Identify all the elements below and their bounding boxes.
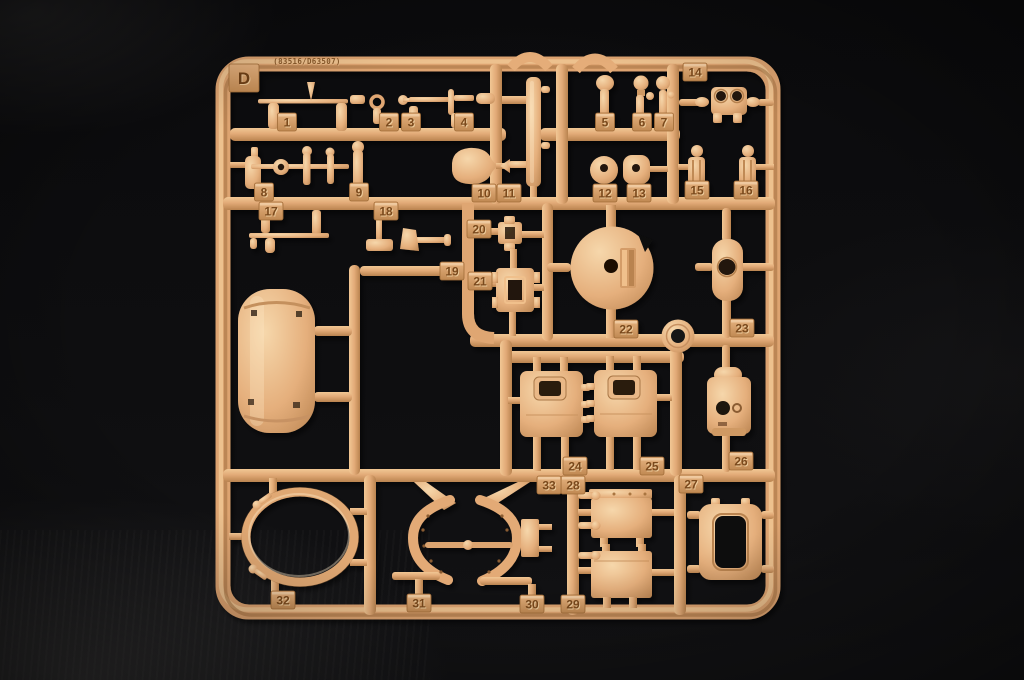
mold-code: (83516/D63507) (83516/D63507): [273, 57, 341, 67]
part-number-tab: 1414: [683, 63, 707, 81]
part-number: 31: [412, 597, 426, 611]
part-number: 9: [356, 186, 363, 200]
part-number-tab: 2626: [729, 452, 753, 470]
part-number-tab: 3030: [520, 595, 544, 613]
part-number: 24: [568, 460, 582, 474]
part-frame-27: [687, 498, 774, 580]
part-number: 25: [645, 460, 659, 474]
part-number-tab: 1919: [440, 262, 464, 280]
sprue-letter-tab: D D: [229, 64, 259, 92]
part-number-tab: 3333: [537, 476, 561, 494]
part-number: 30: [525, 598, 539, 612]
part-number: 23: [735, 322, 749, 336]
part-number: 15: [690, 184, 704, 198]
part-cylinder-26: [707, 367, 751, 436]
mold-code-text: (83516/D63507): [273, 57, 340, 66]
part-number-tab: 1717: [259, 202, 283, 220]
part-cylinder-shell: [238, 289, 352, 433]
part-number-tab: 2121: [468, 272, 492, 290]
part-number: 32: [276, 594, 290, 608]
part-number-tab: 2727: [679, 475, 703, 493]
part-number: 20: [472, 223, 486, 237]
part-number-tab: 1010: [472, 184, 496, 202]
part-number-tab: 1111: [497, 184, 521, 202]
part-number: 7: [661, 116, 668, 130]
part-number-tab: 55: [596, 113, 615, 131]
part-hatch-plate-25: [586, 356, 672, 470]
part-number-tab: 2828: [561, 476, 585, 494]
part-number: 3: [408, 116, 415, 130]
photo-background: D D (83516/D63507) (83516/D63507) 112233…: [0, 0, 1024, 680]
part-number: 14: [688, 66, 702, 80]
part-number-tab: 44: [455, 113, 474, 131]
part-number-tab: 88: [255, 183, 274, 201]
part-number-tab: 1212: [593, 184, 617, 202]
part-number: 26: [734, 455, 748, 469]
sprue-letter: D: [238, 69, 250, 88]
part-number: 13: [632, 187, 646, 201]
part-number-tab: 1313: [627, 184, 651, 202]
part-number: 8: [261, 186, 268, 200]
part-number-tab: 1515: [685, 181, 709, 199]
part-number: 16: [739, 184, 753, 198]
part-number-tab: 99: [350, 183, 369, 201]
part-number-tab: 1616: [734, 181, 758, 199]
part-number-tab: 33: [402, 113, 421, 131]
part-number-tab: 2929: [561, 595, 585, 613]
part-number-tab: 2424: [563, 457, 587, 475]
part-number: 22: [619, 323, 633, 337]
part-number-tab: 3131: [407, 594, 431, 612]
part-number: 12: [598, 187, 612, 201]
part-number: 28: [566, 479, 580, 493]
part-number: 27: [684, 478, 698, 492]
part-number: 6: [639, 116, 646, 130]
part-hatch-plate-24: [508, 357, 590, 471]
part-number-tab: 2525: [640, 457, 664, 475]
part-pins-5-7: [596, 75, 675, 118]
part-number: 21: [473, 275, 487, 289]
part-number-tab: 2323: [730, 319, 754, 337]
part-number: 33: [542, 479, 556, 493]
part-number: 1: [284, 116, 291, 130]
part-number-tab: 66: [633, 113, 652, 131]
part-donut-ring: [662, 320, 695, 353]
part-number: 2: [386, 116, 393, 130]
part-ring-32: [229, 478, 367, 608]
part-number: 18: [379, 205, 393, 219]
part-number-tab: 11: [278, 113, 297, 131]
part-number: 19: [445, 265, 459, 279]
part-number: 5: [602, 116, 609, 130]
part-number: 17: [264, 205, 278, 219]
part-number-tab: 77: [655, 113, 674, 131]
part-number: 11: [503, 187, 516, 201]
sprue-illustration: D D (83516/D63507) (83516/D63507) 112233…: [0, 0, 1024, 680]
part-number-tab: 2222: [614, 320, 638, 338]
part-number: 10: [477, 187, 491, 201]
part-number-tab: 3232: [271, 591, 295, 609]
part-number: 29: [566, 598, 580, 612]
part-number-tab: 22: [380, 113, 399, 131]
part-block-14: [679, 87, 774, 123]
sprue: D D (83516/D63507) (83516/D63507) 112233…: [221, 57, 776, 615]
part-disc-22: [571, 227, 654, 310]
part-mount-23: [712, 239, 743, 301]
part-bracket-21: [470, 249, 544, 336]
part-number-tab: 1818: [374, 202, 398, 220]
part-number: 4: [461, 116, 468, 130]
part-number-tab: 2020: [467, 220, 491, 238]
